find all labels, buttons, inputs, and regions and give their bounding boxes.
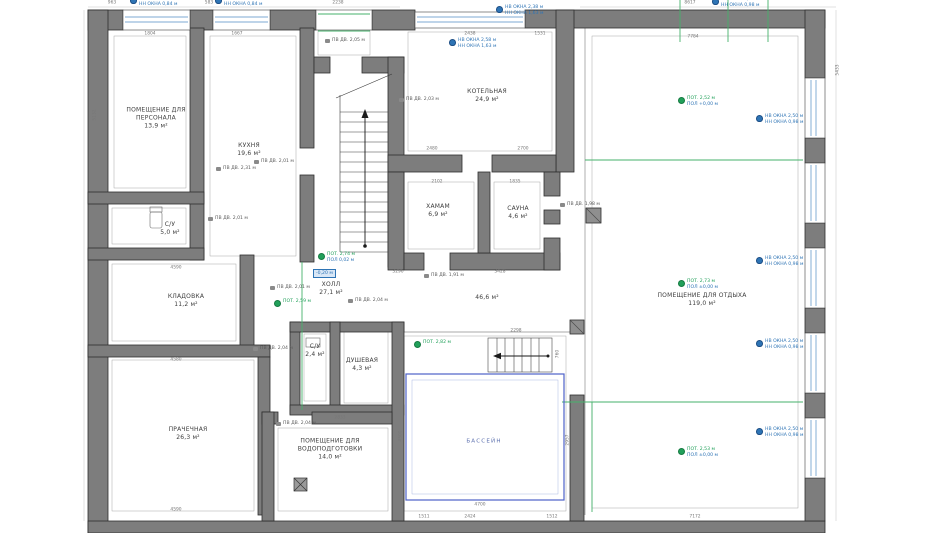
room-name: С/У [160, 221, 180, 229]
window-annotation: НВ ОКНА 2,50 мНН ОКНА 0,98 м [756, 339, 803, 350]
dimension-text: 760 [556, 350, 561, 358]
dimension-text: 4700 [474, 503, 485, 508]
annotation-text: ПВ ДВ. 2,04 м [260, 346, 293, 352]
annotation-text: НВ ОКНА 2,50 мНН ОКНА 0,98 м [765, 256, 803, 267]
annotation-line: НН ОКНА 0,84 м [139, 2, 177, 8]
room-name: С/У [305, 343, 325, 351]
dimension-text: 7172 [689, 515, 700, 520]
ceiling-annotation: ПОТ. 2,52 мПОЛ +0,00 м [678, 96, 718, 107]
annotation-text: ПОТ. 2,52 мПОЛ +0,00 м [687, 96, 718, 107]
annotation-line: ПВ ДВ. 2,03 м [406, 97, 439, 103]
annotation-text: ПВ ДВ. 2,01 м [261, 159, 294, 165]
annotation-text: НВ ОКНА 2,50 мНН ОКНА 0,98 м [765, 114, 803, 125]
annotation-line: НН ОКНА 0,98 м [765, 120, 803, 126]
window-icon [496, 6, 503, 13]
room-name: САУНА [507, 205, 529, 213]
room-area: 11,2 м² [168, 301, 204, 309]
door-icon [216, 167, 221, 171]
door-icon [348, 299, 353, 303]
door-annotation: ПВ ДВ. 2,01 м [270, 285, 310, 291]
window-annotation: НВ ОКНА 2,50 мНН ОКНА 0,98 м [756, 114, 803, 125]
floor-plan-canvas: ПОМЕЩЕНИЕ ДЛЯ ПЕРСОНАЛА13,9 м²КУХНЯ19,6 … [0, 0, 951, 533]
window-icon [756, 257, 763, 264]
room-area: 119,0 м² [657, 300, 746, 308]
annotation-text: ПВ ДВ. 2,05 м [332, 38, 365, 44]
room-name: ДУШЕВАЯ [346, 357, 378, 365]
annotation-line: НН ОКНА 1,63 м [505, 11, 543, 17]
window-annotation: НВ ОКНА 2,50 мНН ОКНА 0,98 м [756, 256, 803, 267]
dimension-text: 1531 [534, 32, 545, 37]
dimension-text: 1667 [231, 32, 242, 37]
dimension-text: 4580 [170, 358, 181, 363]
door-icon [424, 274, 429, 278]
room-area: 6,9 м² [426, 211, 450, 219]
annotation-text: ПВ ДВ. 2,04 м [355, 298, 388, 304]
dimension-text: 4590 [170, 508, 181, 513]
room-label: 46,6 м² [475, 294, 499, 302]
ceiling-icon [678, 280, 685, 287]
annotation-line: ПВ ДВ. 1,98 м [567, 202, 600, 208]
annotation-text: ПОТ. 2,59 м [283, 299, 311, 305]
door-annotation: ПВ ДВ. 2,05 м [325, 38, 365, 44]
door-icon [253, 347, 258, 351]
room-area: 24,9 м² [467, 96, 507, 104]
annotation-text: ПОТ. 2,53 мПОЛ ±0,00 м [687, 447, 718, 458]
room-label: С/У2,4 м² [305, 343, 325, 359]
room-name: ПОМЕЩЕНИЕ ДЛЯ ПЕРСОНАЛА [126, 106, 185, 122]
room-label: КОТЕЛЬНАЯ24,9 м² [467, 88, 507, 104]
window-icon [449, 39, 456, 46]
annotation-text: ПВ ДВ. 2,01 м [215, 216, 248, 222]
room-area: 27,1 м² [319, 289, 343, 297]
room-label: КУХНЯ19,6 м² [237, 142, 261, 158]
annotation-text: ПВ ДВ. 2,03 м [406, 97, 439, 103]
labels-layer: ПОМЕЩЕНИЕ ДЛЯ ПЕРСОНАЛА13,9 м²КУХНЯ19,6 … [0, 0, 951, 533]
annotation-line: НН ОКНА 0,84 м [224, 2, 262, 8]
annotation-line: ПВ ДВ. 2,05 м [332, 38, 365, 44]
room-name: КЛАДОВКА [168, 293, 204, 301]
annotation-text: ПВ ДВ. 1,91 м [431, 273, 464, 279]
door-icon [254, 160, 259, 164]
annotation-text: НВ ОКНА 2,50 мНН ОКНА 0,98 м [721, 0, 759, 8]
annotation-text: НВ ОКНА 2,58 мНН ОКНА 1,63 м [458, 38, 496, 49]
door-annotation: ПВ ДВ. 2,01 м [208, 216, 248, 222]
annotation-line: ПВ ДВ. 1,91 м [431, 273, 464, 279]
ceiling-annotation: ПОТ. 2,73 мПОЛ ±0,00 м [678, 279, 718, 290]
door-annotation: ПВ ДВ. 2,03 м [399, 97, 439, 103]
window-icon [712, 0, 719, 5]
ceiling-annotation: ПОТ. 2,59 м [274, 299, 311, 307]
annotation-text: ПОТ. 2,73 мПОЛ ±0,00 м [687, 279, 718, 290]
annotation-line: ПОТ. 2,59 м [283, 299, 311, 305]
window-icon [756, 340, 763, 347]
room-name: КУХНЯ [237, 142, 261, 150]
dimension-text: 8617 [684, 1, 695, 6]
dimension-text: 1512 [546, 515, 557, 520]
room-name: КОТЕЛЬНАЯ [467, 88, 507, 96]
room-label: КЛАДОВКА11,2 м² [168, 293, 204, 309]
door-annotation: ПВ ДВ. 1,91 м [424, 273, 464, 279]
dimension-text: 2480 [426, 147, 437, 152]
annotation-line: ПВ ДВ. 2,04 м [260, 346, 293, 352]
annotation-text: НВ ОКНА 2,50 мНН ОКНА 0,98 м [765, 427, 803, 438]
window-annotation: НВ ОКНА 2,50 мНН ОКНА 0,98 м [756, 427, 803, 438]
annotation-line: ПОЛ ±0,00 м [687, 453, 718, 459]
ceiling-icon [678, 97, 685, 104]
door-annotation: ПВ ДВ. 2,31 м [216, 166, 256, 172]
window-icon [215, 0, 222, 4]
window-icon [130, 0, 137, 4]
ceiling-icon [414, 341, 421, 348]
door-annotation: ПВ ДВ. 1,98 м [560, 202, 600, 208]
room-label: ДУШЕВАЯ4,3 м² [346, 357, 378, 373]
room-name: ПОМЕЩЕНИЕ ДЛЯ ВОДОПОДГОТОВКИ [298, 437, 363, 453]
window-annotation: НВ ОКНА 2,50 мНН ОКНА 0,98 м [712, 0, 759, 8]
annotation-text: НВ ОКНА 1,84 мНН ОКНА 0,84 м [224, 0, 262, 7]
dimension-text: 963 [108, 1, 116, 6]
dimension-text: 2957 [566, 434, 571, 445]
annotation-text: НВ ОКНА 2,50 мНН ОКНА 0,98 м [765, 339, 803, 350]
room-area: 2,4 м² [305, 351, 325, 359]
annotation-line: ПВ ДВ. 2,01 м [215, 216, 248, 222]
door-icon [270, 286, 275, 290]
room-area: 19,6 м² [237, 150, 261, 158]
door-annotation: ПВ ДВ. 2,01 м [254, 159, 294, 165]
dimension-text: 2833 [334, 416, 345, 421]
room-label: ПОМЕЩЕНИЕ ДЛЯ ОТДЫХА119,0 м² [657, 292, 746, 308]
door-icon [208, 217, 213, 221]
ceiling-icon [274, 300, 281, 307]
ceiling-icon [318, 253, 325, 260]
dimension-text: 3296 [392, 270, 403, 275]
annotation-line: ПВ ДВ. 2,04 м [283, 421, 316, 427]
room-label: С/У5,0 м² [160, 221, 180, 237]
room-area: 14,0 м² [298, 453, 363, 461]
annotation-text: ПОТ. 2,82 м [423, 340, 451, 346]
annotation-line: ПВ ДВ. 2,01 м [261, 159, 294, 165]
dimension-text: 1804 [144, 32, 155, 37]
annotation-line: НН ОКНА 0,98 м [765, 433, 803, 439]
door-annotation: ПВ ДВ. 2,04 м [253, 346, 293, 352]
annotation-line: ПОЛ +0,00 м [687, 102, 718, 108]
room-label: ХОЛЛ27,1 м² [319, 281, 343, 297]
annotation-line: НН ОКНА 0,98 м [721, 3, 759, 9]
dimension-text: 2102 [431, 180, 442, 185]
dimension-text: 7784 [687, 35, 698, 40]
room-name: ПОМЕЩЕНИЕ ДЛЯ ОТДЫХА [657, 292, 746, 300]
dimension-text: 2424 [464, 515, 475, 520]
room-area: 26,3 м² [169, 434, 208, 442]
annotation-text: ПВ ДВ. 2,04 м [283, 421, 316, 427]
room-label: САУНА4,6 м² [507, 205, 529, 221]
dimension-text: 5433 [836, 64, 841, 75]
dimension-text: 2298 [510, 329, 521, 334]
annotation-text: ПОТ. 2,74 мПОЛ 0,02 м [327, 252, 355, 263]
annotation-line: НН ОКНА 0,98 м [765, 262, 803, 268]
annotation-line: ПВ ДВ. 2,01 м [277, 285, 310, 291]
annotation-line: ПОЛ ±0,00 м [687, 285, 718, 291]
room-area: 4,3 м² [346, 365, 378, 373]
annotation-line: НН ОКНА 0,98 м [765, 345, 803, 351]
room-name: ХОЛЛ [319, 281, 343, 289]
dimension-text: 4590 [170, 266, 181, 271]
ceiling-icon [678, 448, 685, 455]
room-name: ХАМАМ [426, 203, 450, 211]
window-annotation: НВ ОКНА 2,58 мНН ОКНА 1,63 м [449, 38, 496, 49]
annotation-text: НВ ОКНА 2,38 мНН ОКНА 1,63 м [505, 5, 543, 16]
room-name: БАССЕЙН [466, 438, 501, 445]
level-mark-box: -0,20 м [313, 269, 336, 278]
window-icon [756, 428, 763, 435]
room-label: ПРАЧЕЧНАЯ26,3 м² [169, 426, 208, 442]
door-annotation: ПВ ДВ. 2,04 м [276, 421, 316, 427]
door-icon [399, 98, 404, 102]
dimension-text: 2438 [464, 32, 475, 37]
annotation-line: ПВ ДВ. 2,04 м [355, 298, 388, 304]
dimension-text: 4500 [399, 430, 404, 441]
room-name: ПРАЧЕЧНАЯ [169, 426, 208, 434]
window-annotation: НВ ОКНА 1,84 мНН ОКНА 0,84 м [130, 0, 177, 7]
room-label: ХАМАМ6,9 м² [426, 203, 450, 219]
door-icon [276, 422, 281, 426]
door-annotation: ПВ ДВ. 2,04 м [348, 298, 388, 304]
room-area: 46,6 м² [475, 294, 499, 302]
room-label: ПОМЕЩЕНИЕ ДЛЯ ПЕРСОНАЛА13,9 м² [126, 106, 185, 129]
annotation-text: ПВ ДВ. 1,98 м [567, 202, 600, 208]
room-area: 5,0 м² [160, 229, 180, 237]
annotation-line: НН ОКНА 1,63 м [458, 44, 496, 50]
ceiling-annotation: ПОТ. 2,82 м [414, 340, 451, 348]
room-area: 4,6 м² [507, 213, 529, 221]
dimension-text: 3428 [494, 270, 505, 275]
annotation-line: ПОТ. 2,82 м [423, 340, 451, 346]
room-area: 13,9 м² [126, 122, 185, 130]
ceiling-annotation: ПОТ. 2,53 мПОЛ ±0,00 м [678, 447, 718, 458]
dimension-text: 5132 [93, 109, 98, 120]
dimension-text: 2700 [517, 147, 528, 152]
annotation-text: ПВ ДВ. 2,31 м [223, 166, 256, 172]
door-icon [560, 203, 565, 207]
dimension-text: 1511 [418, 515, 429, 520]
annotation-line: ПВ ДВ. 2,31 м [223, 166, 256, 172]
dimension-text: 1835 [509, 180, 520, 185]
dimension-text: 583 [205, 1, 213, 6]
window-annotation: НВ ОКНА 1,84 мНН ОКНА 0,84 м [215, 0, 262, 7]
dimension-text: 2238 [332, 1, 343, 6]
room-label: БАССЕЙН [466, 438, 501, 445]
annotation-line: ПОЛ 0,02 м [327, 258, 355, 264]
ceiling-annotation: ПОТ. 2,74 мПОЛ 0,02 м [318, 252, 355, 263]
annotation-text: ПВ ДВ. 2,01 м [277, 285, 310, 291]
room-label: ПОМЕЩЕНИЕ ДЛЯ ВОДОПОДГОТОВКИ14,0 м² [298, 437, 363, 460]
annotation-text: НВ ОКНА 1,84 мНН ОКНА 0,84 м [139, 0, 177, 7]
door-icon [325, 39, 330, 43]
window-annotation: НВ ОКНА 2,38 мНН ОКНА 1,63 м [496, 5, 543, 16]
window-icon [756, 115, 763, 122]
